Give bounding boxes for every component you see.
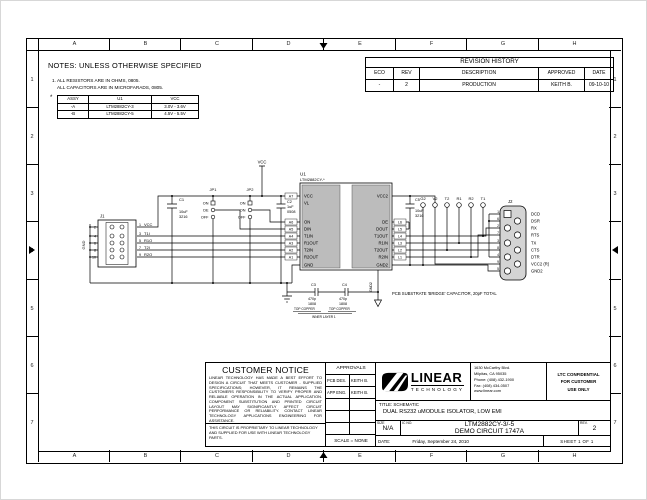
linear-logo-icon	[382, 371, 408, 393]
col-letter-cell: B	[109, 450, 181, 462]
row-number-cell: 3	[26, 164, 38, 222]
date-row: DATE: Friday, September 24, 2010 SHEET 1…	[376, 436, 610, 446]
revision-history-table: REVISION HISTORY ECO REV DESCRIPTION APP…	[365, 57, 614, 92]
assy-cell: 4.5V - 5.5V	[152, 111, 199, 119]
row-number: 7	[30, 420, 33, 426]
company-name: LINEAR	[411, 372, 464, 384]
col-letter: F	[430, 453, 433, 459]
col-letter: B	[144, 453, 148, 459]
row-number-cell: 3	[609, 164, 621, 222]
row-number-cell: 7	[26, 393, 38, 451]
row-number-cell: 5	[26, 279, 38, 337]
col-letter: C	[215, 453, 219, 459]
approvals-value	[350, 410, 376, 422]
row-number: 4	[613, 248, 616, 254]
customer-notice-body: LINEAR TECHNOLOGY HAS MADE A BEST EFFORT…	[209, 376, 322, 424]
company-sub: TECHNOLOGY	[411, 385, 464, 392]
demo-circuit: DEMO CIRCUIT 1747A	[401, 429, 578, 436]
col-letter-cell: C	[180, 38, 253, 50]
col-letter: F	[430, 41, 433, 47]
revision-cell-rev: 2	[394, 80, 420, 92]
revision-header: ECO	[366, 68, 394, 80]
revision-cell-approved: KEITH B.	[539, 80, 585, 92]
assy-table: ASSY U1 VCC -A LTM2882CY-3 3.0V - 3.6V -…	[57, 95, 199, 119]
schematic-sheet: A B C D E F G H A B C D E F G H 1 2 3 4 …	[0, 0, 647, 500]
assy-cell: 3.0V - 3.6V	[152, 103, 199, 111]
col-letter: E	[358, 453, 362, 459]
col-letter: D	[287, 41, 291, 47]
assy-cell: -A	[58, 103, 89, 111]
address-line: www.linear.com	[474, 388, 546, 394]
size-cell: SIZE N/A	[376, 421, 401, 436]
row-number: 2	[30, 134, 33, 140]
size-value: N/A	[376, 425, 400, 432]
date-value: Friday, September 24, 2010	[412, 439, 469, 444]
revision-header: APPROVED	[539, 68, 585, 80]
col-letter: A	[73, 453, 77, 459]
revision-header: REV	[394, 68, 420, 80]
confidential-line: USE ONLY	[567, 386, 589, 393]
col-letter-cell: E	[323, 450, 396, 462]
col-letter: H	[573, 41, 577, 47]
date-label: DATE:	[378, 439, 390, 444]
row-number: 3	[30, 191, 33, 197]
rev-cell: REV. 2	[579, 421, 610, 436]
col-letter-cell: C	[180, 450, 253, 462]
approvals-value: KEITH B.	[350, 374, 376, 386]
size-row: SIZE N/A IC NO. LTM2882CY-3/-5 DEMO CIRC…	[376, 421, 610, 436]
row-number-cell: 1	[26, 50, 38, 108]
assy-row: -A LTM2882CY-3 3.0V - 3.6V	[58, 103, 199, 111]
approvals-label	[326, 422, 350, 434]
customer-notice-title: CUSTOMER NOTICE	[209, 365, 322, 375]
logo-text: LINEAR TECHNOLOGY	[411, 372, 464, 392]
col-letter-cell: F	[395, 38, 467, 50]
row-number: 2	[613, 134, 616, 140]
assy-table-star: *	[50, 95, 52, 101]
col-letter-cell: G	[466, 38, 539, 50]
approvals-value	[350, 422, 376, 434]
revision-cell-date: 09-10-10	[585, 80, 614, 92]
col-letter: E	[358, 41, 362, 47]
col-letter: C	[215, 41, 219, 47]
col-letter-cell: E	[323, 38, 396, 50]
approvals-value: KEITH B.	[350, 386, 376, 398]
row-number-cell: 5	[609, 279, 621, 337]
col-letter-cell: H	[538, 450, 610, 462]
ic-number: LTM2882CY-3/-5 DEMO CIRCUIT 1747A	[401, 422, 578, 436]
drawing-title-row: TITLE: SCHEMATIC DUAL RS232 uMODULE ISOL…	[376, 401, 610, 421]
sheet-number: SHEET 1 OF 1	[544, 436, 610, 446]
revision-header: DESCRIPTION	[420, 68, 539, 80]
col-letter-cell: G	[466, 450, 539, 462]
row-number: 5	[613, 306, 616, 312]
col-letter: D	[287, 453, 291, 459]
col-letter: A	[73, 41, 77, 47]
revision-history-title: REVISION HISTORY	[366, 58, 614, 68]
col-letter: H	[573, 453, 577, 459]
approvals-label: PCB DES.	[326, 374, 350, 386]
row-number: 7	[613, 420, 616, 426]
row-number: 4	[30, 248, 33, 254]
revision-header: DATE	[585, 68, 614, 80]
col-letter: B	[144, 41, 148, 47]
assy-row: -B LTM2882CY-5 4.5V - 5.5V	[58, 111, 199, 119]
approvals-label	[326, 410, 350, 422]
approvals-label	[326, 398, 350, 410]
title-block: CUSTOMER NOTICE LINEAR TECHNOLOGY HAS MA…	[205, 362, 611, 447]
row-number-cell: 4	[609, 221, 621, 280]
title-label: TITLE: SCHEMATIC	[379, 402, 610, 407]
rev-value: 2	[579, 425, 610, 432]
revision-row: - 2 PRODUCTION KEITH B. 09-10-10	[366, 80, 614, 92]
row-number-cell: 4	[26, 221, 38, 280]
confidential-line: LTC CONFIDENTIAL	[557, 371, 599, 378]
title-block-right: LINEAR TECHNOLOGY 1630 McCarthy Blvd. Mi…	[376, 363, 610, 446]
col-letter-cell: A	[38, 38, 110, 50]
revision-cell-description: PRODUCTION	[420, 80, 539, 92]
customer-notice: CUSTOMER NOTICE LINEAR TECHNOLOGY HAS MA…	[206, 363, 326, 424]
assy-header: VCC	[152, 96, 199, 104]
col-letter-cell: D	[252, 450, 324, 462]
linear-logo: LINEAR TECHNOLOGY	[376, 363, 471, 401]
row-number-cell: 2	[26, 107, 38, 165]
approvals-value	[350, 398, 376, 410]
col-letter-cell: A	[38, 450, 110, 462]
row-number-cell: 6	[26, 336, 38, 394]
confidential-note: LTC CONFIDENTIAL FOR CUSTOMER USE ONLY	[547, 363, 610, 401]
assy-header: ASSY	[58, 96, 89, 104]
date-cell: DATE: Friday, September 24, 2010	[376, 436, 544, 446]
approvals-label: APP ENG.	[326, 386, 350, 398]
company-address: 1630 McCarthy Blvd. Milpitas, CA 95035 P…	[471, 363, 547, 401]
logo-row: LINEAR TECHNOLOGY 1630 McCarthy Blvd. Mi…	[376, 363, 610, 401]
col-letter-cell: F	[395, 450, 467, 462]
col-letter-cell: H	[538, 38, 610, 50]
col-letter-cell: B	[109, 38, 181, 50]
assy-cell: LTM2882CY-5	[89, 111, 152, 119]
drawing-title: DUAL RS232 uMODULE ISOLATOR, LOW EMI	[383, 409, 610, 415]
row-number: 6	[30, 363, 33, 369]
confidential-line: FOR CUSTOMER	[561, 378, 597, 385]
revision-cell-eco: -	[366, 80, 394, 92]
note-line-2: ALL CAPACITORS ARE IN MICROFARADS, 0805.	[57, 85, 163, 90]
ic-number-cell: IC NO. LTM2882CY-3/-5 DEMO CIRCUIT 1747A	[401, 421, 579, 436]
row-number: 6	[613, 363, 616, 369]
assy-cell: -B	[58, 111, 89, 119]
proprietary-notice: THIS CIRCUIT IS PROPRIETARY TO LINEAR TE…	[206, 424, 326, 446]
col-letter: G	[501, 41, 505, 47]
row-number-cell: 2	[609, 107, 621, 165]
col-letter-cell: D	[252, 38, 324, 50]
row-number: 3	[613, 191, 616, 197]
note-line-1: 1. ALL RESISTORS ARE IN OHMS, 0805.	[52, 78, 140, 83]
row-number: 1	[30, 77, 33, 83]
assy-header: U1	[89, 96, 152, 104]
col-letter: G	[501, 453, 505, 459]
scale-note: SCALE = NONE	[326, 434, 376, 446]
assy-cell: LTM2882CY-3	[89, 103, 152, 111]
row-number: 5	[30, 306, 33, 312]
approvals-table: APPROVALS PCB DES. KEITH B. APP ENG. KEI…	[326, 363, 376, 446]
notes-title: NOTES: UNLESS OTHERWISE SPECIFIED	[48, 61, 201, 70]
